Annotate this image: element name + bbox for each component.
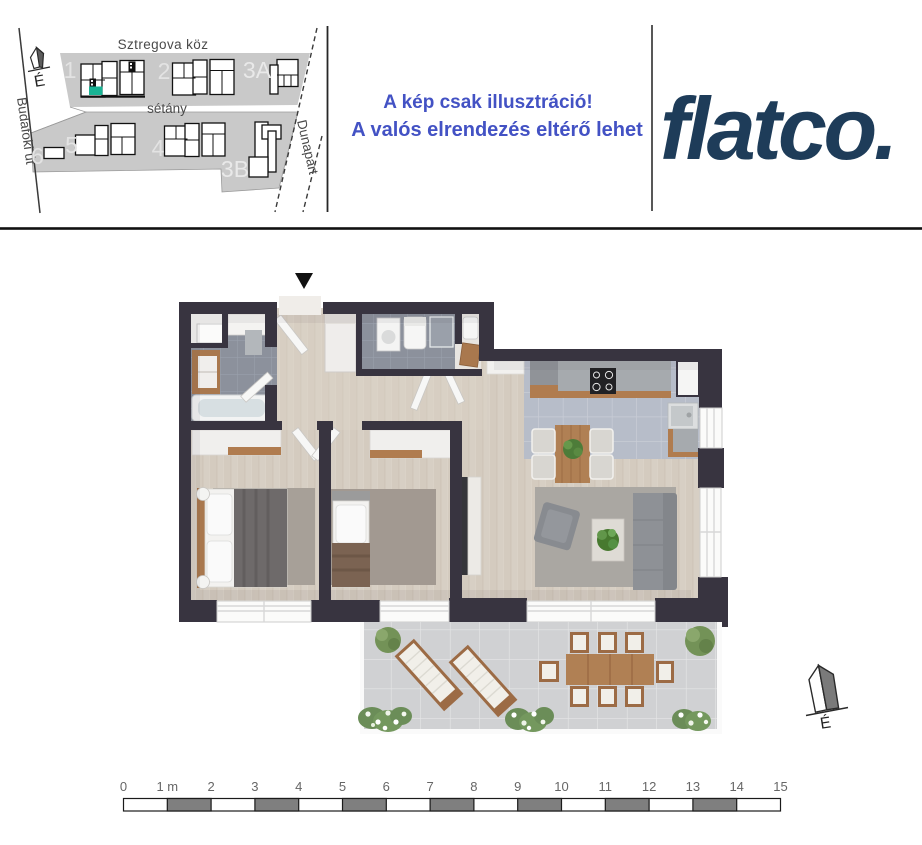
svg-text:13: 13	[686, 779, 700, 794]
svg-text:1: 1	[64, 57, 77, 83]
svg-text:2: 2	[207, 779, 214, 794]
svg-text:12: 12	[642, 779, 656, 794]
svg-text:7: 7	[426, 779, 433, 794]
svg-text:6: 6	[383, 779, 390, 794]
svg-text:Sztregova köz: Sztregova köz	[118, 37, 209, 52]
svg-text:15: 15	[773, 779, 787, 794]
svg-text:2: 2	[158, 58, 171, 84]
svg-text:1 m: 1 m	[156, 779, 178, 794]
svg-text:14: 14	[729, 779, 743, 794]
svg-text:É: É	[33, 70, 47, 91]
svg-text:11: 11	[599, 779, 613, 794]
svg-text:flatco.: flatco.	[660, 79, 895, 178]
svg-text:4: 4	[152, 135, 165, 161]
svg-text:Dunapart: Dunapart	[294, 118, 321, 176]
svg-text:3A: 3A	[243, 57, 272, 83]
svg-text:0: 0	[120, 779, 127, 794]
svg-text:4: 4	[295, 779, 302, 794]
svg-text:sétány: sétány	[147, 101, 187, 116]
svg-text:3: 3	[251, 779, 258, 794]
svg-text:A valós elrendezés eltérő lehe: A valós elrendezés eltérő lehet	[351, 119, 643, 141]
svg-text:5: 5	[65, 132, 78, 158]
svg-text:6: 6	[31, 143, 44, 169]
svg-text:É: É	[819, 712, 833, 732]
svg-text:A kép csak illusztráció!: A kép csak illusztráció!	[383, 92, 592, 113]
svg-text:10: 10	[554, 779, 568, 794]
svg-text:3B: 3B	[221, 156, 249, 182]
svg-text:9: 9	[514, 779, 521, 794]
svg-text:5: 5	[339, 779, 346, 794]
svg-text:8: 8	[470, 779, 477, 794]
